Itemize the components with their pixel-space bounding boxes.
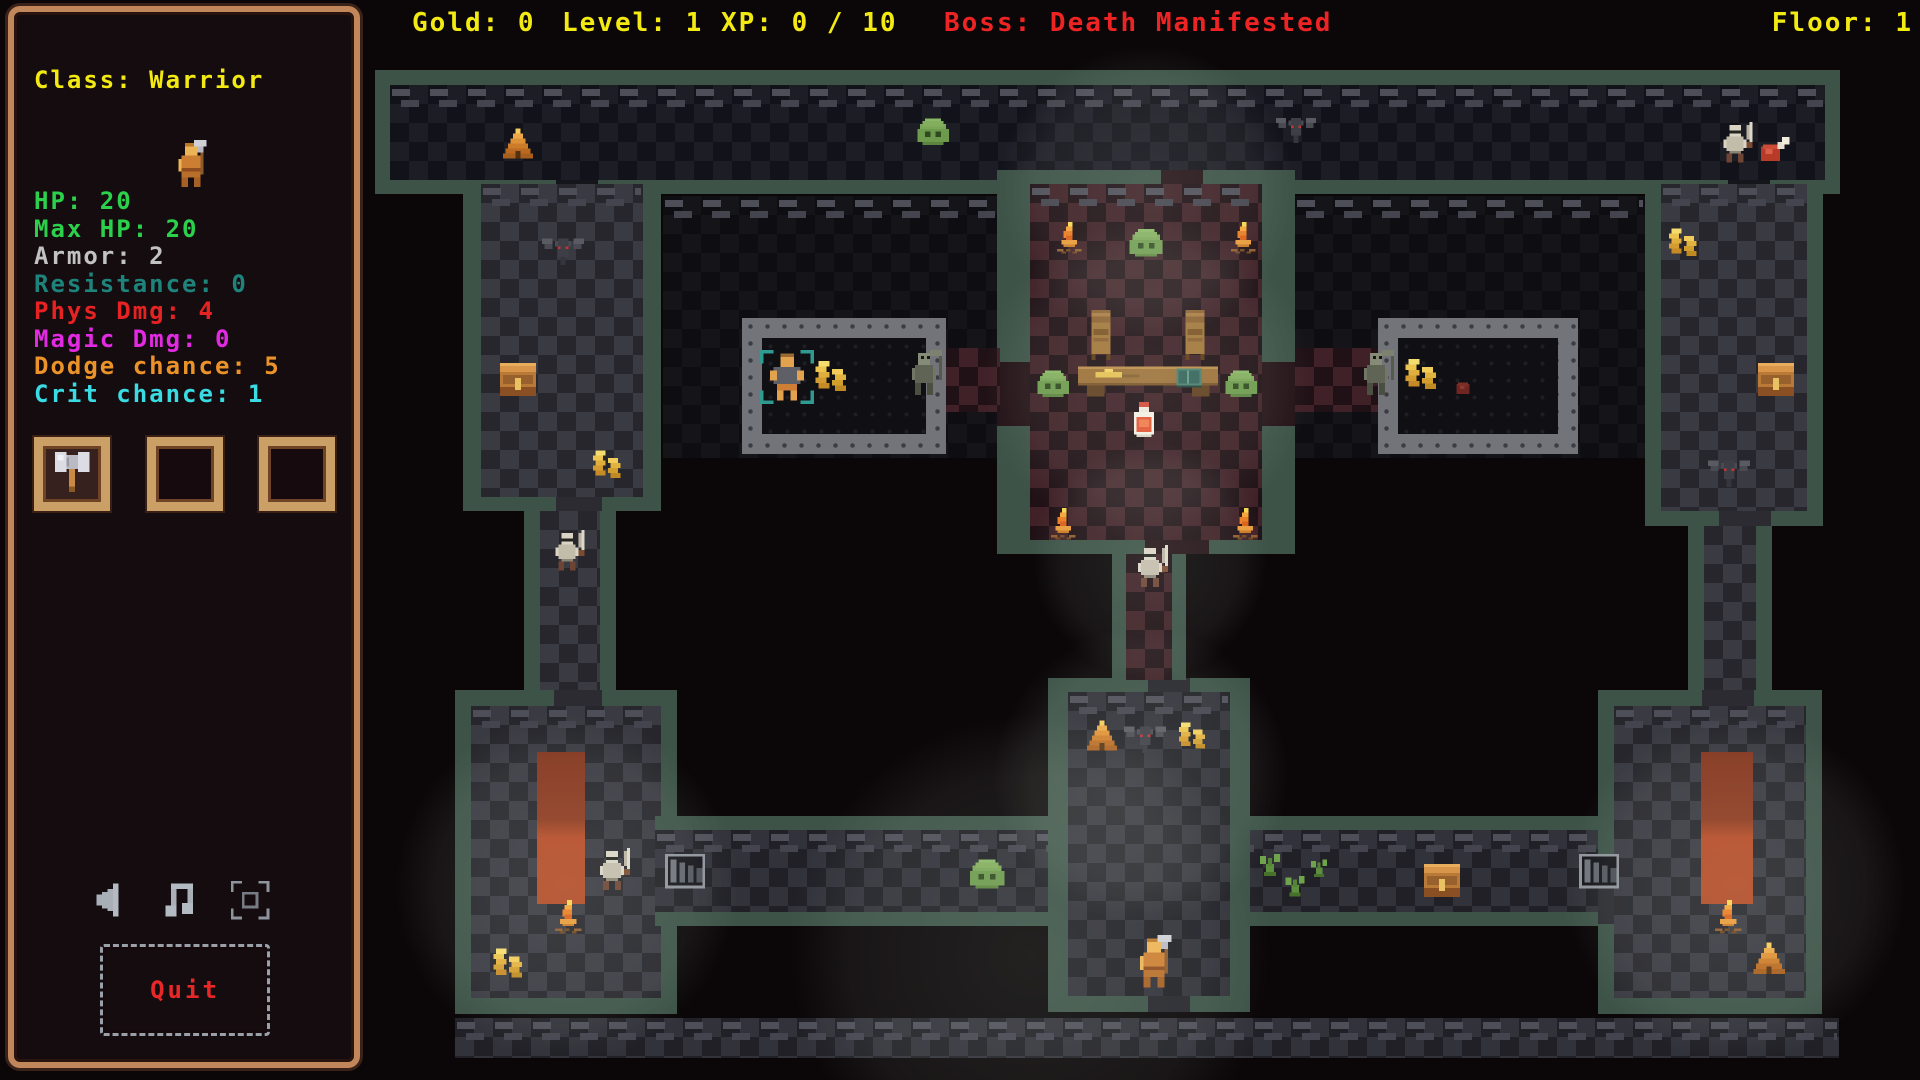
stat-line: Max HP: 20 [34, 216, 281, 244]
inventory-slot-3[interactable] [259, 437, 335, 511]
slime-sprite[interactable] [1220, 360, 1262, 402]
skeleton-sprite[interactable] [588, 848, 636, 896]
chest-sprite[interactable] [1418, 855, 1466, 903]
torch-sprite [1708, 900, 1746, 938]
wall-dash-band [1663, 188, 1805, 212]
skeleton-sprite[interactable] [1712, 122, 1758, 168]
quit-button[interactable]: Quit [100, 944, 270, 1036]
torch-sprite [1050, 222, 1086, 258]
floor-label: Floor: 1 [1772, 8, 1913, 38]
slime-sprite[interactable] [1032, 360, 1074, 402]
wall-dash-band [1616, 710, 1804, 734]
doorway[interactable] [1161, 170, 1203, 184]
stat-line: Dodge chance: 5 [34, 353, 281, 381]
stat-line: Armor: 2 [34, 243, 281, 271]
character-panel: Class: Warrior HP: 20Max HP: 20Armor: 2R… [8, 6, 360, 1068]
room-bottom-band [455, 1018, 1839, 1058]
room-right-corridor [1688, 526, 1772, 692]
stat-line: HP: 20 [34, 188, 281, 216]
stats-list: HP: 20Max HP: 20Armor: 2Resistance: 0Phy… [34, 188, 281, 408]
tent-sprite[interactable] [1748, 940, 1790, 982]
player-sprite[interactable] [1126, 935, 1182, 991]
bat-sprite[interactable] [542, 228, 584, 270]
doorway[interactable] [1262, 362, 1295, 426]
doorway[interactable] [556, 497, 602, 511]
zombie-sprite[interactable] [760, 350, 814, 404]
music-icon[interactable] [160, 878, 204, 922]
crate-sprite [1576, 848, 1622, 894]
book-sprite[interactable] [1172, 360, 1206, 394]
torch-sprite [1044, 508, 1080, 544]
cabinet-sprite [1086, 310, 1116, 360]
torch-sprite [1226, 508, 1262, 544]
gold-sprite[interactable] [588, 448, 628, 488]
gold-sprite[interactable] [488, 946, 530, 988]
slime-sprite[interactable] [964, 848, 1010, 894]
doorway[interactable] [1148, 678, 1190, 692]
wall-dash-band [473, 710, 659, 734]
inventory-slot-2[interactable] [147, 437, 223, 511]
xp-label: XP: 0 / 10 [721, 8, 898, 38]
gold-sprite[interactable] [1664, 226, 1704, 266]
tent-sprite[interactable] [498, 126, 538, 166]
sprout-sprite[interactable] [1306, 856, 1332, 882]
stat-line: Resistance: 0 [34, 271, 281, 299]
gold-sprite[interactable] [810, 358, 854, 402]
stat-line: Phys Dmg: 4 [34, 298, 281, 326]
carpet [1701, 752, 1753, 904]
skeleton-scythe-sprite[interactable] [1352, 350, 1400, 398]
bat-sprite[interactable] [1124, 716, 1166, 758]
wall-dash-band [457, 1022, 1837, 1046]
class-label: Class: Warrior [34, 66, 264, 94]
volume-icon[interactable] [88, 878, 132, 922]
doorway[interactable] [997, 362, 1030, 426]
top-status-bar: Gold: 0 Level: 1 XP: 0 / 10 Boss: Death … [0, 0, 1920, 44]
gold-sprite[interactable] [1400, 356, 1444, 400]
meat-sprite[interactable] [1756, 130, 1794, 168]
stat-line: Magic Dmg: 0 [34, 326, 281, 354]
game-screen: Gold: 0 Level: 1 XP: 0 / 10 Boss: Death … [0, 0, 1920, 1080]
doorway[interactable] [554, 690, 602, 706]
fullscreen-icon[interactable] [228, 878, 272, 922]
inventory-slot-1[interactable] [34, 437, 110, 511]
gold-sprite[interactable] [1174, 720, 1212, 758]
bat-sprite[interactable] [1708, 450, 1750, 492]
gold-label: Gold: 0 [412, 8, 536, 38]
blob-sprite [1450, 376, 1476, 402]
doorway[interactable] [1148, 996, 1190, 1012]
tent-sprite[interactable] [1082, 718, 1122, 758]
wall-dash-band [1032, 188, 1260, 212]
bat-sprite[interactable] [1276, 108, 1316, 148]
torch-sprite [1224, 222, 1260, 258]
axe-icon [49, 449, 95, 495]
wall-dash-band [665, 200, 995, 224]
level-label: Level: 1 [562, 8, 703, 38]
skeleton-sprite[interactable] [1126, 545, 1174, 593]
doorway[interactable] [1719, 511, 1771, 526]
slime-sprite[interactable] [912, 108, 954, 150]
potion-sprite[interactable] [1124, 402, 1164, 442]
slime-sprite[interactable] [1124, 218, 1168, 262]
torch-sprite [548, 900, 586, 938]
stat-line: Crit chance: 1 [34, 381, 281, 409]
skeleton-scythe-sprite[interactable] [900, 350, 948, 398]
crate-sprite [662, 848, 708, 894]
skeleton-sprite[interactable] [544, 530, 590, 576]
cabinet-sprite [1180, 310, 1210, 360]
chest-sprite[interactable] [494, 354, 542, 402]
doorway[interactable] [1702, 690, 1754, 706]
room-red-corridor-left [940, 348, 1000, 412]
boss-label: Boss: Death Manifested [944, 8, 1332, 38]
wall-dash-band [392, 89, 1823, 113]
wall-dash-band [1297, 200, 1643, 224]
wall-dash-band [483, 188, 641, 212]
chest-sprite[interactable] [1752, 354, 1800, 402]
carpet [537, 752, 585, 904]
